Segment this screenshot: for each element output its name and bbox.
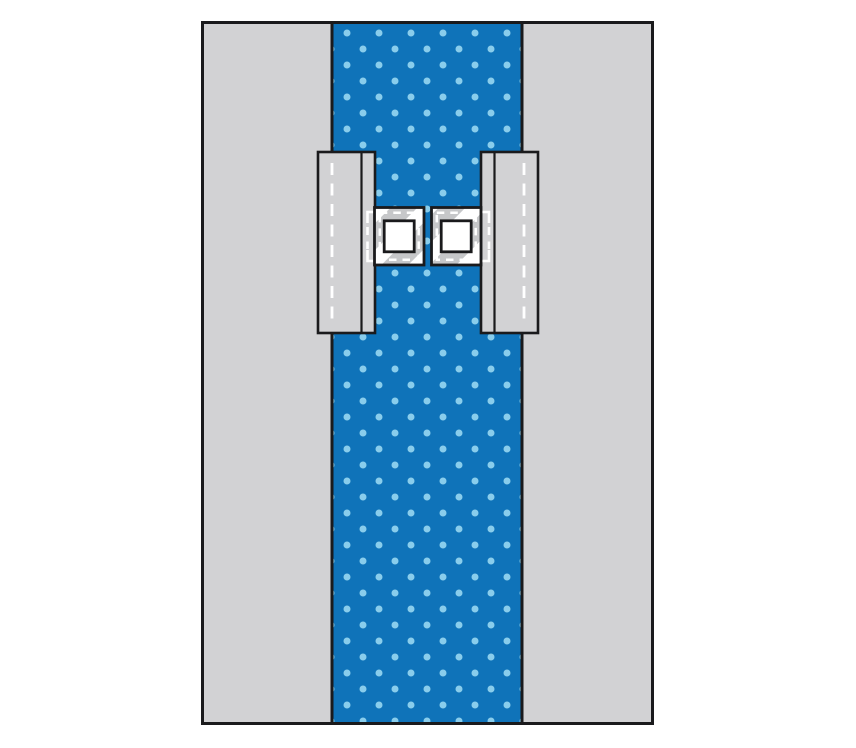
- left-pad: [375, 208, 425, 266]
- right-aperture: [441, 221, 471, 252]
- illustration-canvas: Diagram of a surgical drape: grey rectan…: [0, 0, 856, 748]
- reinforcement-strip: [332, 23, 522, 724]
- surgical-drape-diagram: Diagram of a surgical drape: grey rectan…: [0, 0, 856, 748]
- right-pad: [432, 208, 482, 266]
- reinforcement-strip-rect: [332, 23, 522, 724]
- left-aperture: [384, 221, 414, 252]
